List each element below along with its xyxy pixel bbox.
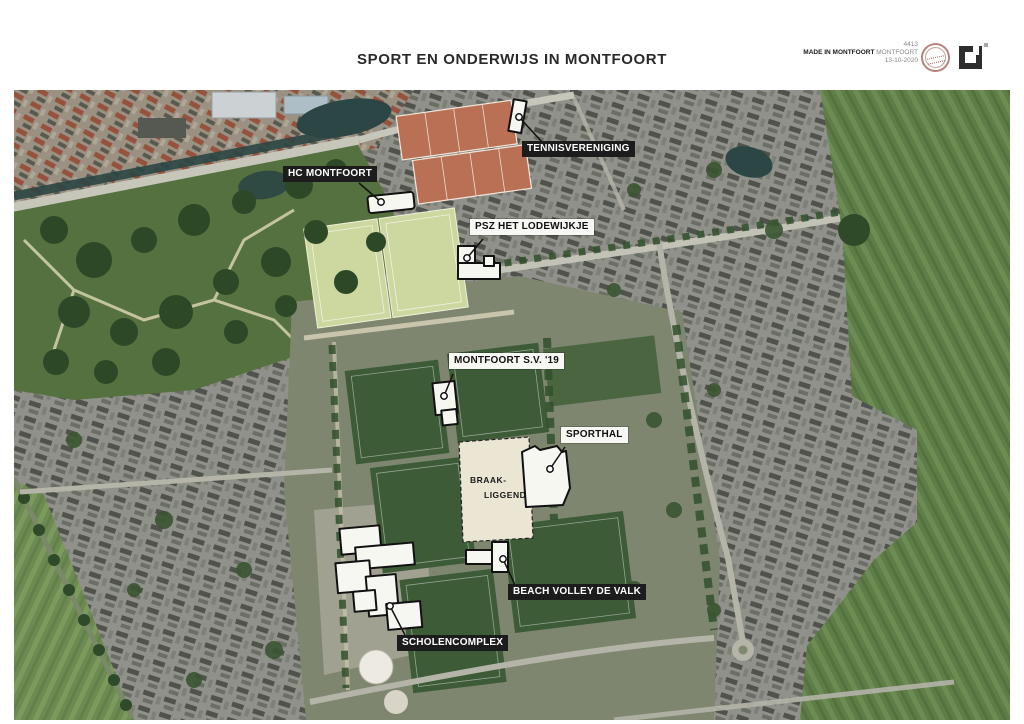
map-label-beach-volley-de-valk: BEACH VOLLEY DE VALK: [508, 584, 646, 600]
publisher-logo-icon: [959, 42, 987, 70]
dome-structure: [359, 650, 393, 684]
sporthal-building: [522, 446, 570, 507]
dome-structure: [384, 690, 408, 714]
tree-cluster: [838, 214, 870, 246]
map-label-hc-montfoort: HC MONTFOORT: [283, 166, 377, 182]
map-label-tennisvereniging: TENNISVERENIGING: [522, 141, 635, 157]
map-label-psz-het-lodewijkje: PSZ HET LODEWIJKJE: [470, 219, 594, 235]
imprint-number: 4413: [803, 41, 918, 49]
imprint-date: 13-10-2020: [803, 57, 918, 65]
hockey-fields: [304, 208, 468, 328]
imprint-text: 4413 MADE IN MONTFOORT MONTFOORT 13-10-2…: [803, 41, 918, 65]
map-label-scholencomplex: SCHOLENCOMPLEX: [397, 635, 508, 651]
hc-montfoort-building: [367, 192, 415, 214]
map-label-sporthal: SPORTHAL: [561, 427, 628, 443]
round-stamp-icon: [918, 40, 952, 74]
scanned-map-page: { "page": { "title": "SPORT EN ONDERWIJS…: [0, 0, 1024, 724]
imprint-made-in: MADE IN MONTFOORT MONTFOORT: [803, 49, 918, 57]
map-label-montfoort-sv-19: MONTFOORT S.V. '19: [449, 353, 564, 369]
vacant-lot-text-2: LIGGEND: [484, 490, 526, 500]
aerial-photo-art: BRAAK- LIGGEND: [14, 90, 1010, 720]
vacant-lot-text-1: BRAAK-: [470, 475, 507, 485]
aerial-map: BRAAK- LIGGEND: [14, 90, 1010, 720]
